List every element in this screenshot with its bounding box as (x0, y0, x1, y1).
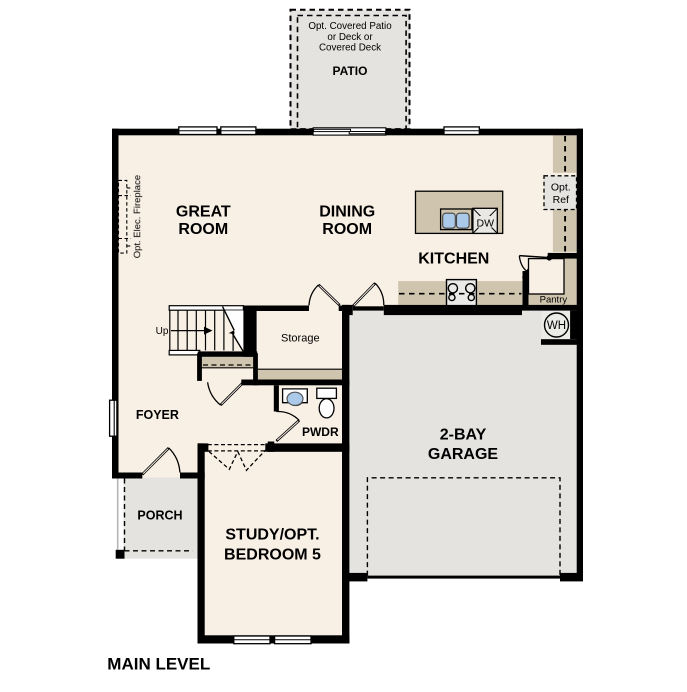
svg-text:Storage: Storage (281, 333, 320, 345)
svg-text:Up: Up (156, 326, 169, 337)
svg-text:2-BAY: 2-BAY (440, 427, 487, 444)
svg-text:PORCH: PORCH (137, 508, 182, 522)
svg-text:FOYER: FOYER (136, 408, 179, 422)
svg-text:DW: DW (477, 218, 495, 230)
svg-text:BEDROOM 5: BEDROOM 5 (224, 546, 321, 563)
svg-text:ROOM: ROOM (178, 221, 228, 238)
svg-text:GREAT: GREAT (176, 203, 231, 220)
svg-text:Covered Deck: Covered Deck (319, 43, 381, 54)
svg-text:GARAGE: GARAGE (428, 446, 499, 463)
svg-text:MAIN LEVEL: MAIN LEVEL (107, 655, 210, 674)
svg-text:Opt.: Opt. (551, 182, 571, 194)
svg-text:STUDY/OPT.: STUDY/OPT. (225, 527, 319, 544)
svg-text:PATIO: PATIO (333, 64, 368, 78)
svg-text:PWDR: PWDR (302, 425, 339, 439)
svg-text:Pantry: Pantry (540, 295, 568, 306)
svg-text:Opt. Elec. Fireplace: Opt. Elec. Fireplace (132, 175, 143, 258)
svg-text:or Deck or: or Deck or (327, 32, 373, 43)
svg-text:Opt. Covered Patio: Opt. Covered Patio (308, 21, 392, 32)
svg-text:Ref: Ref (553, 194, 569, 206)
svg-text:WH: WH (547, 320, 566, 332)
svg-text:KITCHEN: KITCHEN (418, 251, 489, 268)
svg-text:ROOM: ROOM (322, 221, 372, 238)
svg-text:DINING: DINING (319, 203, 375, 220)
